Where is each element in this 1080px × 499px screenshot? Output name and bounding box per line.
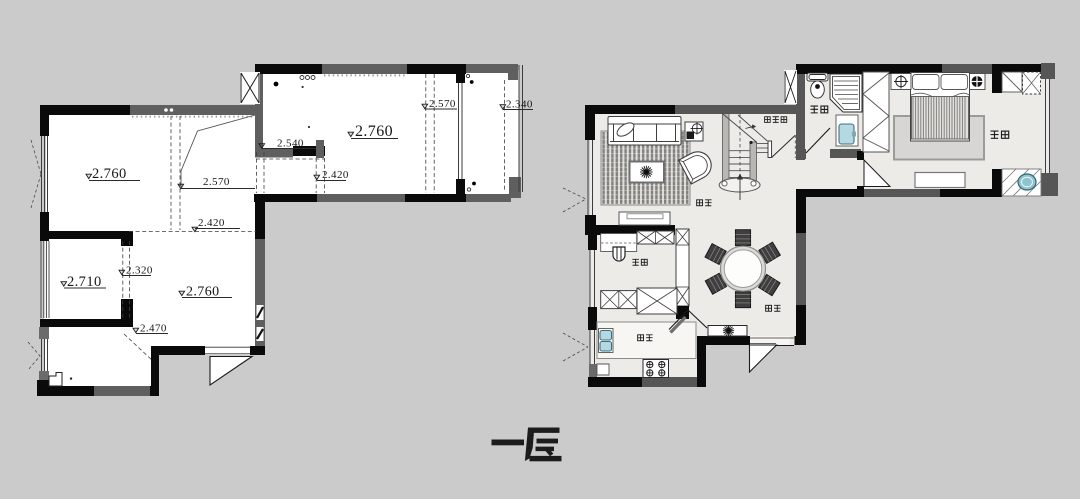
svg-text:2.760: 2.760 [92, 166, 127, 182]
svg-text:2.760: 2.760 [355, 123, 393, 140]
svg-text:2.420: 2.420 [322, 169, 349, 181]
svg-text:2.540: 2.540 [277, 138, 304, 150]
svg-text:2.420: 2.420 [198, 217, 225, 229]
svg-text:2.320: 2.320 [126, 265, 153, 277]
svg-text:2.570: 2.570 [429, 98, 456, 110]
svg-text:2.570: 2.570 [203, 176, 230, 188]
svg-text:2.470: 2.470 [140, 323, 167, 335]
svg-text:2.340: 2.340 [506, 99, 533, 111]
